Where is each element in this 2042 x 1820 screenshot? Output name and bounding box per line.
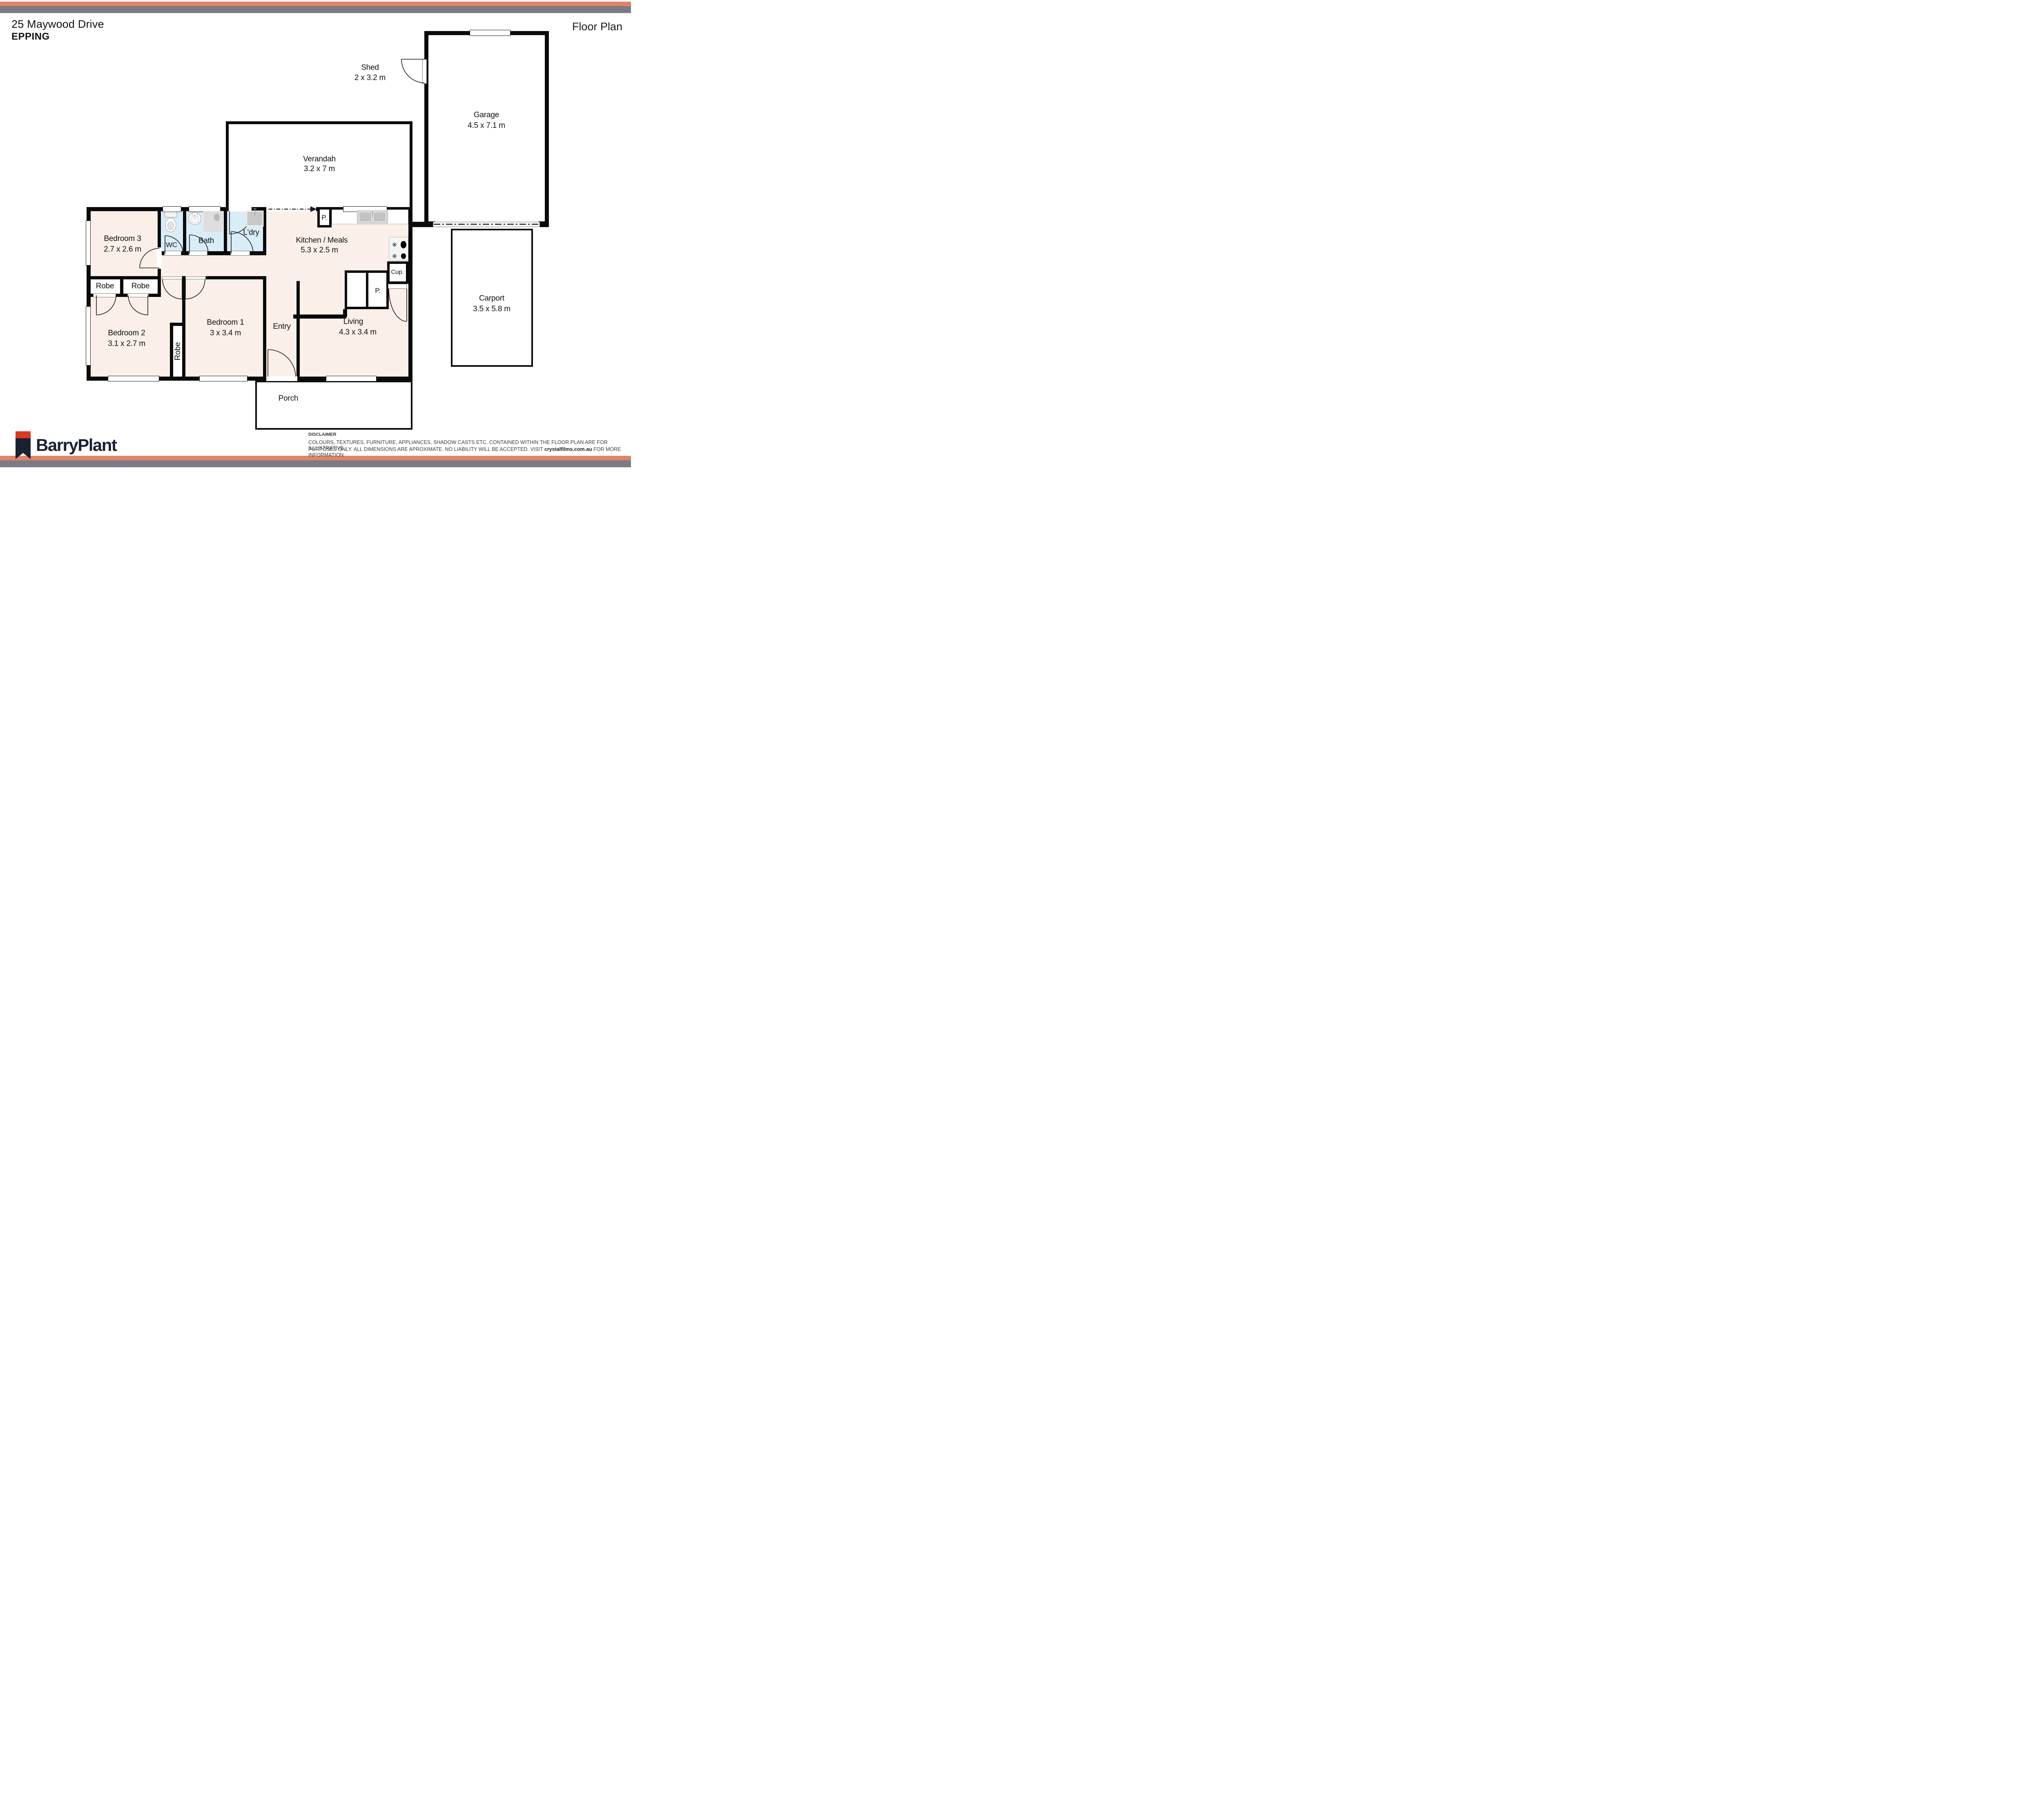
disclaimer-line2: PURPOSES ONLY. ALL DIMENSIONS ARE APROXI… xyxy=(308,446,631,458)
robe2-threshold xyxy=(127,293,149,297)
room-label-wc: WC xyxy=(166,241,177,249)
living-door-threshold xyxy=(388,284,407,289)
laundry-verandah-door-gap xyxy=(229,207,252,212)
cabinet-label-pantry-bottom: P. xyxy=(375,287,380,295)
porch-structure xyxy=(255,381,412,430)
top-bar-salmon xyxy=(0,2,631,6)
disclaimer-link: crystalfilms.com.au xyxy=(544,446,592,452)
garage-roller-door xyxy=(433,222,540,227)
closet-label-robe2: Robe xyxy=(132,282,150,291)
garage-door-arc xyxy=(401,59,424,83)
room-label-bedroom2-name: Bedroom 2 xyxy=(108,329,145,338)
room-label-living-name: Living xyxy=(343,317,363,326)
cabinet-label-cupboard: Cup. xyxy=(391,269,404,276)
wc-window xyxy=(163,206,181,212)
stove-box xyxy=(389,237,408,261)
top-bar-gray xyxy=(0,6,631,13)
room-label-verandah-name: Verandah xyxy=(303,155,336,164)
bath-door-threshold xyxy=(189,251,207,256)
bedroom2-rear-window xyxy=(108,376,159,381)
kitchen-sliding-opening xyxy=(266,207,316,212)
bedroom3-door-gap xyxy=(157,248,162,269)
floor-plan-page: 25 Maywood Drive EPPING Floor Plan xyxy=(0,0,631,468)
disclaimer-title: DISCLAIMER xyxy=(308,432,336,437)
bottom-bar-gray xyxy=(0,460,631,467)
room-label-verandah-dims: 3.2 x 7 m xyxy=(304,165,335,174)
garage-door-jamb xyxy=(422,59,427,84)
bath-window xyxy=(189,206,221,212)
cabinet-label-pantry-top: P. xyxy=(321,214,327,222)
room-label-garage-name: Garage xyxy=(474,111,499,120)
room-label-bath: Bath xyxy=(198,236,214,245)
robe1-threshold xyxy=(93,293,116,297)
barry-plant-logo-icon xyxy=(16,431,31,459)
front-door-gap xyxy=(266,376,297,381)
bedroom2-side-window xyxy=(86,306,91,366)
living-rear-window xyxy=(326,376,377,381)
bedroom3-window xyxy=(86,221,91,265)
room-label-bedroom2-dims: 3.1 x 2.7 m xyxy=(108,339,145,348)
room-label-laundry: L'dry xyxy=(243,228,259,237)
room-label-bedroom1-dims: 3 x 3.4 m xyxy=(210,329,241,338)
wc-door-threshold xyxy=(164,251,181,256)
room-label-bedroom3-name: Bedroom 3 xyxy=(104,234,141,243)
kitchen-window xyxy=(343,206,387,212)
property-address: 25 Maywood Drive xyxy=(11,18,104,31)
closet-label-robe1: Robe xyxy=(96,282,114,291)
room-label-carport-name: Carport xyxy=(479,294,504,303)
bedroom1-door-threshold xyxy=(185,277,206,279)
garage-window xyxy=(470,30,510,36)
room-label-shed-dims: 2 x 3.2 m xyxy=(354,74,386,83)
bedroom2-door-threshold xyxy=(162,277,182,279)
page-title: Floor Plan xyxy=(572,20,622,33)
disclaimer-line2-pre: PURPOSES ONLY. ALL DIMENSIONS ARE APROXI… xyxy=(308,446,544,452)
bedroom1-rear-window xyxy=(199,376,247,381)
laundry-door-threshold xyxy=(230,251,250,256)
barry-plant-logo-text: BarryPlant xyxy=(36,435,116,455)
room-label-entry: Entry xyxy=(273,322,290,331)
room-label-kitchen-name: Kitchen / Meals xyxy=(296,236,348,245)
property-suburb: EPPING xyxy=(11,31,50,42)
room-label-garage-dims: 4.5 x 7.1 m xyxy=(468,121,505,130)
room-label-bedroom1-name: Bedroom 1 xyxy=(207,318,244,327)
room-label-kitchen-dims: 5.3 x 2.5 m xyxy=(301,246,338,255)
room-label-shed-name: Shed xyxy=(361,63,379,72)
room-label-carport-dims: 3.5 x 5.8 m xyxy=(473,305,510,314)
room-label-bedroom3-dims: 2.7 x 2.6 m xyxy=(104,245,141,254)
room-label-porch: Porch xyxy=(279,394,299,403)
room-label-living-dims: 4.3 x 3.4 m xyxy=(339,328,377,337)
closet-label-robe3: Robe xyxy=(174,342,183,361)
